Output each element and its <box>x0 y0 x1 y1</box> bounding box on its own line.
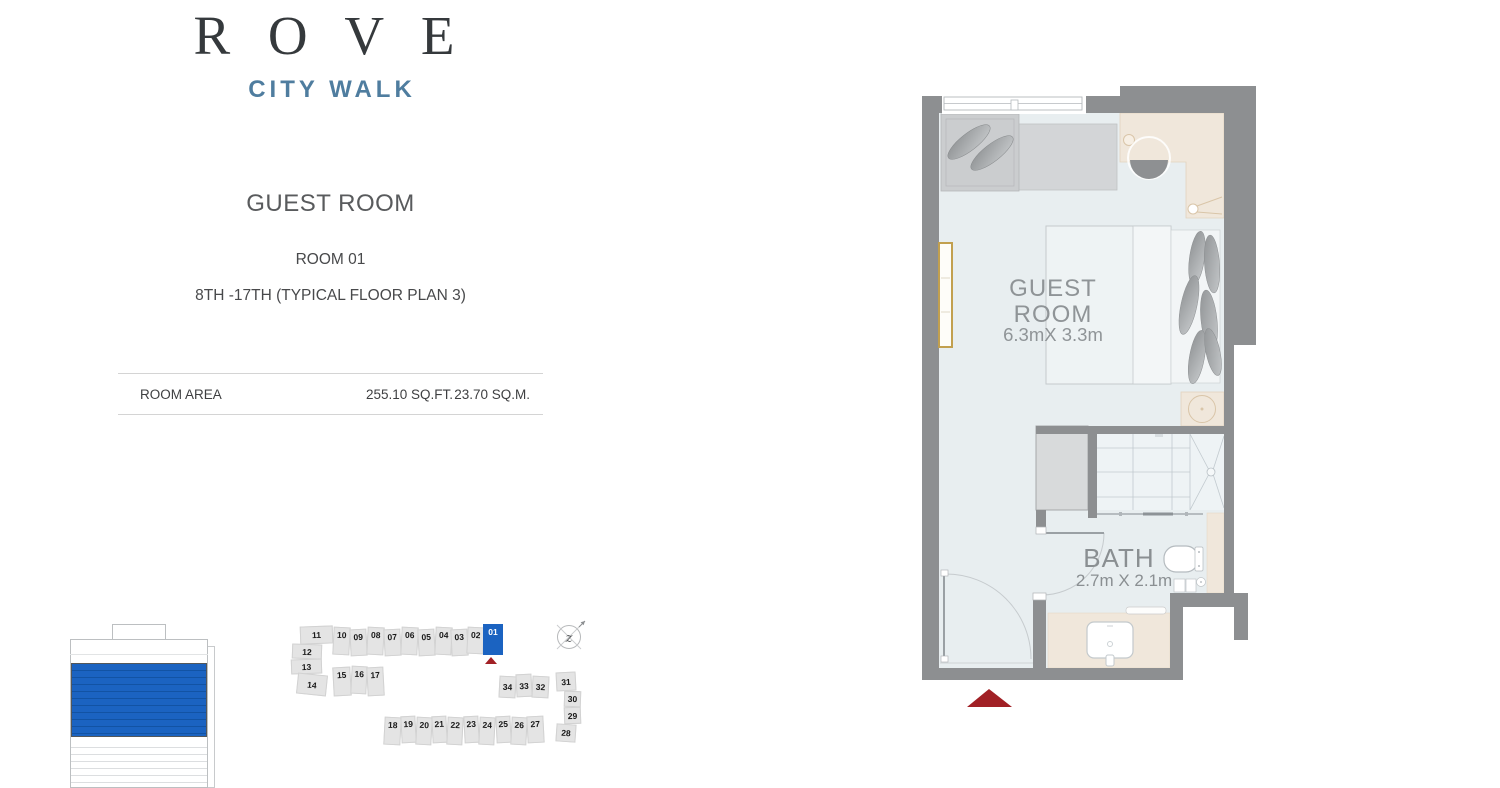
keyplan-unit[interactable]: 31 <box>556 671 577 691</box>
area-metric: 23.70 SQ.M. <box>453 387 543 402</box>
entrance-marker-icon <box>967 689 1012 707</box>
floor-range: 8TH -17TH (TYPICAL FLOOR PLAN 3) <box>118 287 543 305</box>
north-compass-icon: z <box>548 616 592 660</box>
keyplan-unit[interactable]: 33 <box>515 674 532 698</box>
keyplan-unit[interactable]: 16 <box>350 666 367 695</box>
keyplan-unit[interactable]: 06 <box>400 627 418 656</box>
keyplan-unit[interactable]: 29 <box>564 707 582 725</box>
elevation-floor-line <box>70 654 208 655</box>
wardrobe <box>939 243 952 347</box>
keyplan-unit[interactable]: 30 <box>564 691 582 708</box>
building-elevation <box>60 620 235 788</box>
keyplan-unit[interactable]: 22 <box>446 717 463 746</box>
keyplan-unit[interactable]: 14 <box>296 672 328 696</box>
keyplan-unit[interactable]: 21 <box>431 716 447 744</box>
keyplan-unit[interactable]: 10 <box>332 627 350 656</box>
keyplan-unit[interactable]: 26 <box>510 717 527 746</box>
keyplan-unit[interactable]: 28 <box>555 723 576 742</box>
sofa <box>941 114 1117 191</box>
page-title: GUEST ROOM <box>118 190 543 218</box>
compass-glyph: z <box>565 631 573 646</box>
room-number: ROOM 01 <box>118 251 543 269</box>
keyplan-unit[interactable]: 11 <box>300 625 334 644</box>
area-table: ROOM AREA 255.10 SQ.FT. 23.70 SQ.M. <box>118 373 543 415</box>
keyplan-unit[interactable]: 17 <box>366 667 384 697</box>
keyplan-unit[interactable]: 02 <box>466 627 484 655</box>
bath-label: BATH <box>1083 543 1154 573</box>
keyplan-unit[interactable]: 34 <box>498 676 516 699</box>
keyplan-unit[interactable]: 13 <box>291 658 323 674</box>
shower <box>1097 434 1224 510</box>
keyplan-unit-selected[interactable]: 01 <box>483 624 503 655</box>
elevation-lower-floors <box>71 741 207 788</box>
area-label: ROOM AREA <box>118 387 303 402</box>
keyplan-unit[interactable]: 07 <box>383 629 401 657</box>
keyplan-unit[interactable]: 23 <box>463 716 479 744</box>
keyplan-unit[interactable]: 15 <box>332 667 351 697</box>
guest-room-label-line1: GUEST <box>1009 275 1097 302</box>
area-imperial: 255.10 SQ.FT. <box>303 387 453 402</box>
brand-logo: R O V E <box>180 4 480 67</box>
keyplan-unit[interactable]: 09 <box>349 629 367 657</box>
guest-room-dimensions: 6.3mX 3.3m <box>1003 324 1103 345</box>
keyplan-unit[interactable]: 08 <box>366 627 384 656</box>
closet <box>1036 426 1088 510</box>
window <box>942 94 1086 114</box>
selected-unit-marker-icon <box>485 657 497 664</box>
side-table <box>1181 392 1224 426</box>
elevation-annex <box>208 646 215 788</box>
elevation-highlighted-floors <box>71 663 207 737</box>
keyplan-unit[interactable]: 25 <box>495 716 511 744</box>
vanity-counter-side <box>1207 513 1224 593</box>
keyplan-unit[interactable]: 32 <box>531 676 549 699</box>
keyplan-unit[interactable]: 05 <box>417 629 435 657</box>
keyplan-unit[interactable]: 20 <box>415 717 432 746</box>
keyplan-unit[interactable]: 18 <box>383 717 401 746</box>
keyplan-unit[interactable]: 27 <box>526 716 544 744</box>
keyplan-unit[interactable]: 12 <box>292 643 323 659</box>
keyplan-unit[interactable]: 19 <box>400 716 416 744</box>
bath-dimensions: 2.7m X 2.1m <box>1076 571 1172 590</box>
keyplan-unit[interactable]: 24 <box>478 717 495 746</box>
brand-logo-subtitle: CITY WALK <box>182 76 482 104</box>
toilet <box>1164 546 1203 572</box>
floor-plan: GUEST ROOM 6.3mX 3.3m BATH 2.7m X 2.1m <box>915 80 1265 712</box>
